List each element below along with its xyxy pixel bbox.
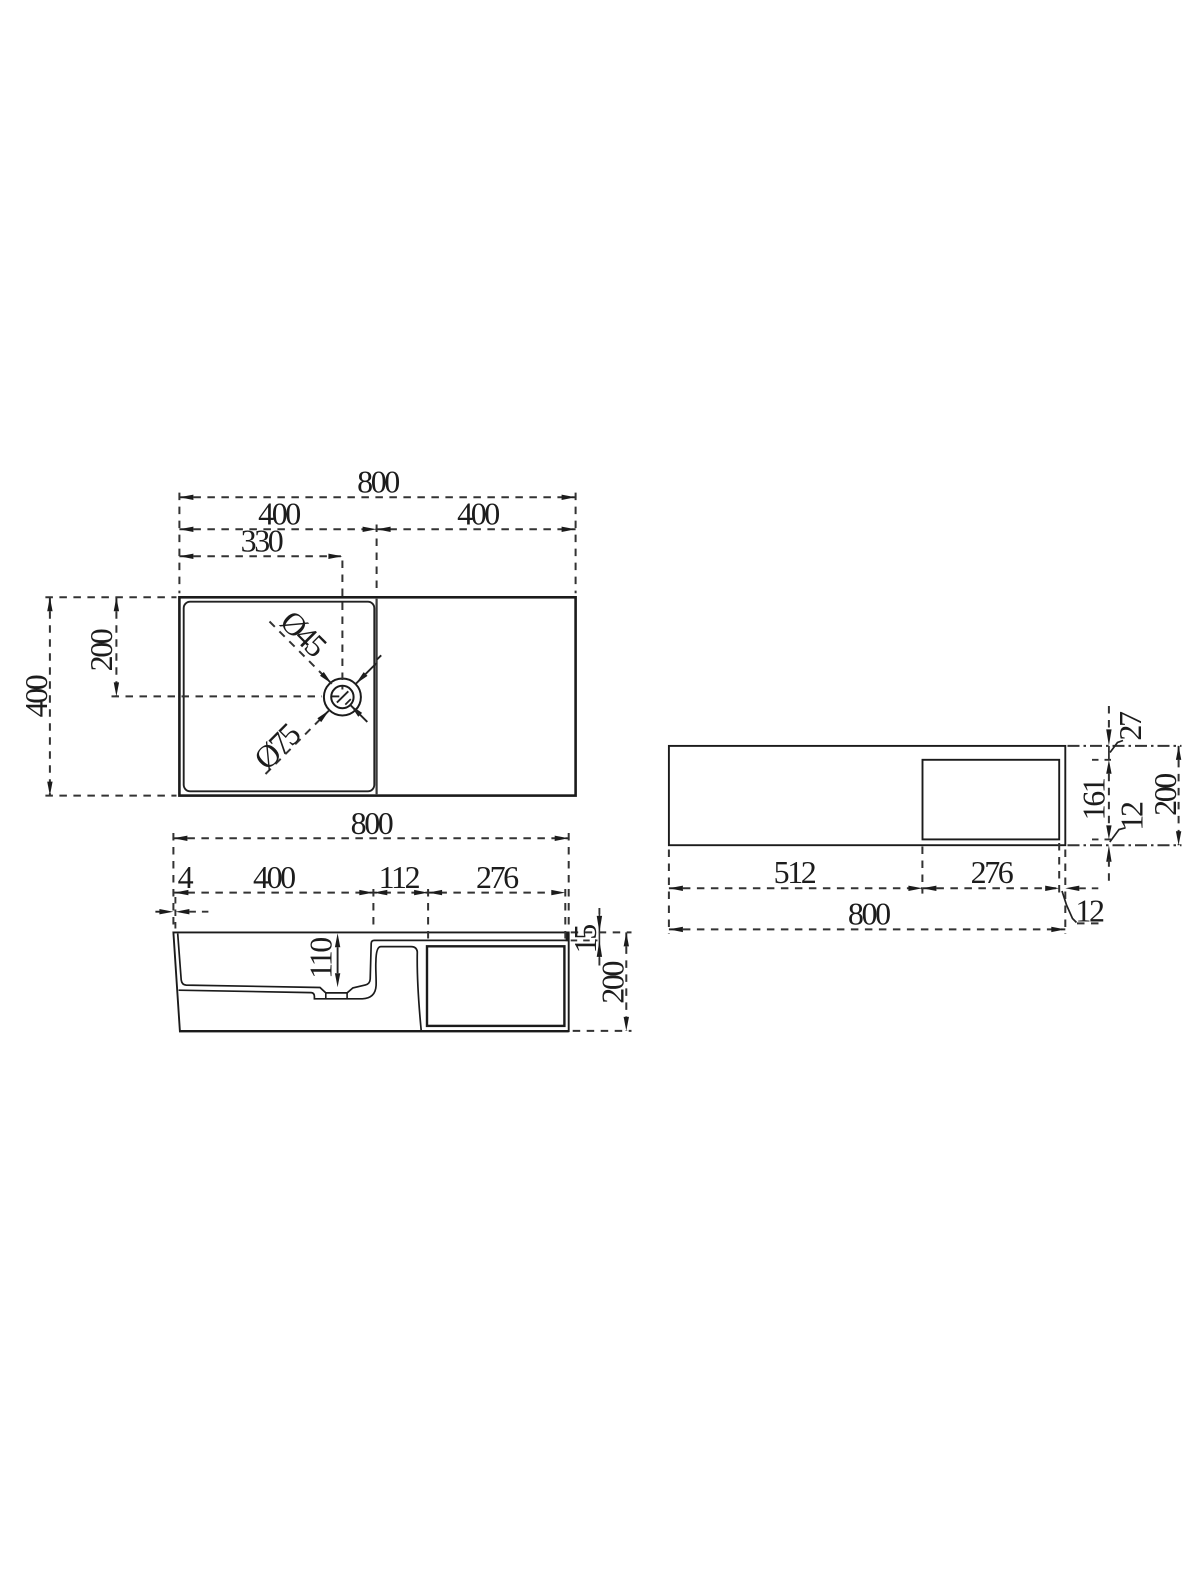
svg-text:512: 512 <box>774 854 816 890</box>
svg-text:800: 800 <box>351 805 393 841</box>
svg-text:161: 161 <box>1076 778 1112 820</box>
svg-text:400: 400 <box>18 675 54 717</box>
svg-text:200: 200 <box>1147 774 1183 816</box>
svg-text:200: 200 <box>594 962 630 1004</box>
svg-text:27: 27 <box>1112 711 1148 741</box>
svg-text:200: 200 <box>83 629 119 671</box>
svg-text:12: 12 <box>1075 892 1104 928</box>
svg-text:400: 400 <box>253 859 295 895</box>
svg-text:12: 12 <box>1114 802 1150 831</box>
svg-text:400: 400 <box>457 496 499 532</box>
svg-text:330: 330 <box>241 523 283 559</box>
svg-text:Ø75: Ø75 <box>247 716 307 776</box>
svg-text:Ø45: Ø45 <box>274 603 334 663</box>
svg-text:800: 800 <box>848 896 890 932</box>
svg-text:800: 800 <box>357 464 399 500</box>
svg-text:110: 110 <box>303 938 339 979</box>
svg-text:112: 112 <box>379 859 420 895</box>
svg-text:4: 4 <box>178 859 194 895</box>
svg-text:276: 276 <box>971 854 1014 890</box>
svg-text:276: 276 <box>476 859 519 895</box>
svg-text:15: 15 <box>567 925 603 954</box>
